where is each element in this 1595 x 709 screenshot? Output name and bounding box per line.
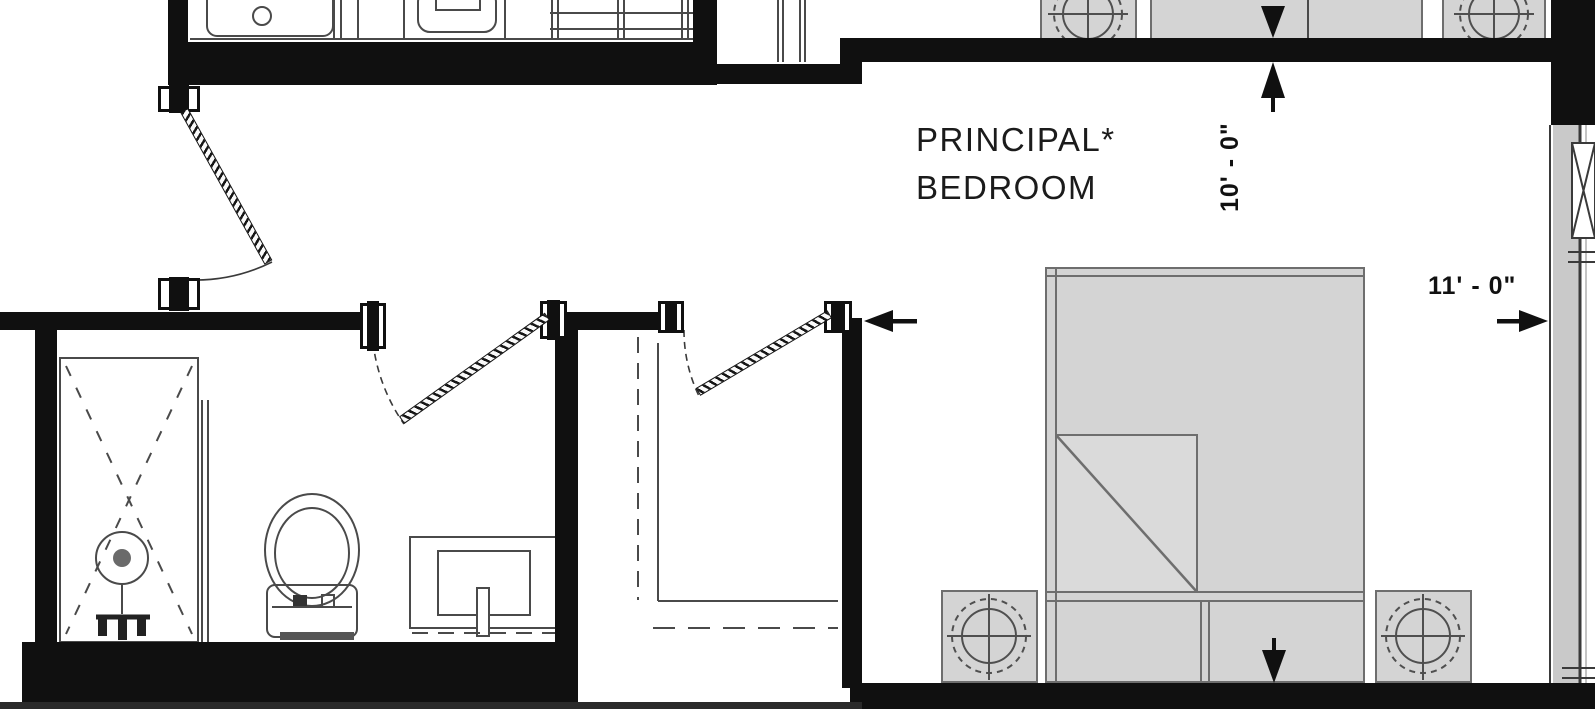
room-label: PRINCIPAL* BEDROOM xyxy=(916,116,1116,212)
room-label-line1: PRINCIPAL* xyxy=(916,116,1116,164)
fixture-layer xyxy=(0,0,1595,709)
nightstand-lamp-left-icon xyxy=(947,594,1031,680)
dim-arrow-up-outside xyxy=(1261,6,1285,38)
toilet-icon xyxy=(265,494,359,640)
wall-top-left-stub xyxy=(168,0,188,46)
wall-top-left xyxy=(168,42,717,85)
wall-right-corner xyxy=(1551,0,1595,125)
wall-bottom-edge-strip xyxy=(0,702,862,709)
wall-bathroom-closet-divider xyxy=(555,330,578,688)
window-wall xyxy=(1550,125,1595,683)
dim-arrow-left xyxy=(864,310,893,332)
shelving-unit xyxy=(550,0,693,38)
wall-bathroom-top xyxy=(0,312,370,330)
dimension-vertical: 10' - 0" xyxy=(1216,122,1245,212)
shower-stall xyxy=(60,358,208,642)
bathroom-door-strike-jamb xyxy=(360,303,386,349)
wall-bathroom-bottom xyxy=(22,642,578,702)
alcove-door-lines xyxy=(778,0,805,62)
upper-door-hinge-jamb xyxy=(158,86,200,112)
wall-closet-right xyxy=(842,318,862,688)
upper-door-strike-jamb xyxy=(158,278,200,310)
wall-bedroom-bottom xyxy=(850,683,1595,709)
room-label-line2: BEDROOM xyxy=(916,164,1116,212)
dimension-horizontal: 11' - 0" xyxy=(1428,272,1516,301)
wall-between-doors xyxy=(562,312,662,330)
dim-arrow-right xyxy=(1519,310,1548,332)
vanity-sink xyxy=(410,537,556,636)
wall-bathroom-left xyxy=(35,330,57,650)
wall-top-right xyxy=(840,38,1555,62)
floor-plan: PRINCIPAL* BEDROOM 10' - 0" 11' - 0" xyxy=(0,0,1595,709)
shower-drain-icon xyxy=(96,532,150,640)
wall-alcove-corner xyxy=(693,0,717,46)
door-swing-arcs xyxy=(191,262,699,424)
closet-door-strike-jamb xyxy=(658,301,684,333)
dimension-arrows xyxy=(864,6,1548,683)
closet-rod xyxy=(638,337,838,628)
dim-arrow-up-inside xyxy=(1261,62,1285,98)
wall-alcove-bottom xyxy=(717,64,840,84)
upper-door-arc xyxy=(191,262,272,280)
dim-arrow-down xyxy=(1262,650,1286,683)
cooktop xyxy=(418,0,505,38)
bed-details xyxy=(1047,269,1363,681)
nightstand-lamp-right-icon xyxy=(1381,594,1465,680)
